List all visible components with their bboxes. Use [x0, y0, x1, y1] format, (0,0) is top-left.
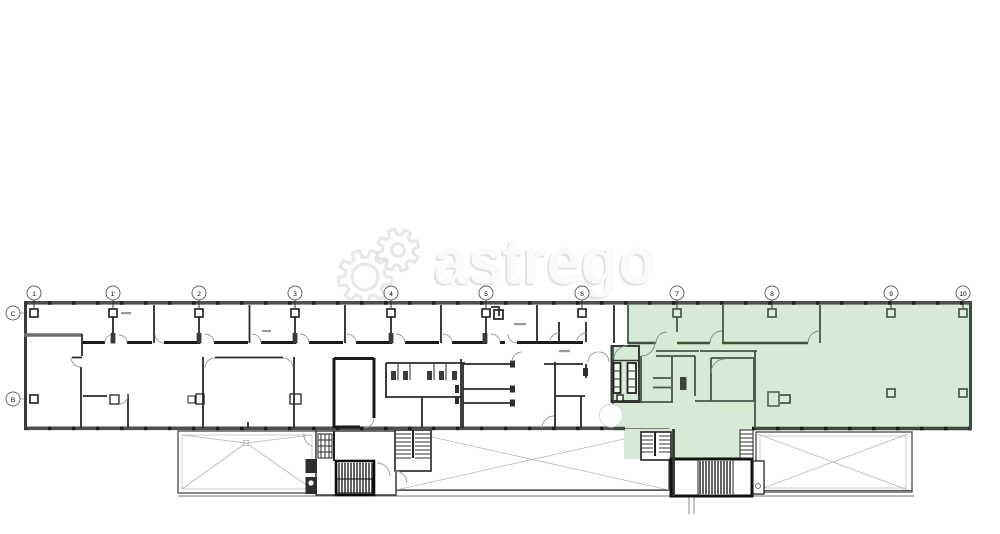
svg-text:astrego: astrego — [434, 224, 656, 298]
svg-text:8: 8 — [770, 291, 774, 298]
svg-text:1': 1' — [111, 291, 116, 298]
svg-text:6: 6 — [580, 291, 584, 298]
svg-text:3: 3 — [293, 291, 297, 298]
svg-text:1: 1 — [32, 291, 36, 298]
svg-text:10: 10 — [959, 291, 967, 298]
svg-text:C: C — [11, 311, 16, 318]
svg-text:2: 2 — [197, 291, 201, 298]
svg-text:9: 9 — [889, 291, 893, 298]
svg-text:5: 5 — [484, 291, 488, 298]
svg-text:4: 4 — [389, 291, 393, 298]
svg-text:B: B — [11, 397, 15, 404]
svg-text:7: 7 — [675, 291, 679, 298]
